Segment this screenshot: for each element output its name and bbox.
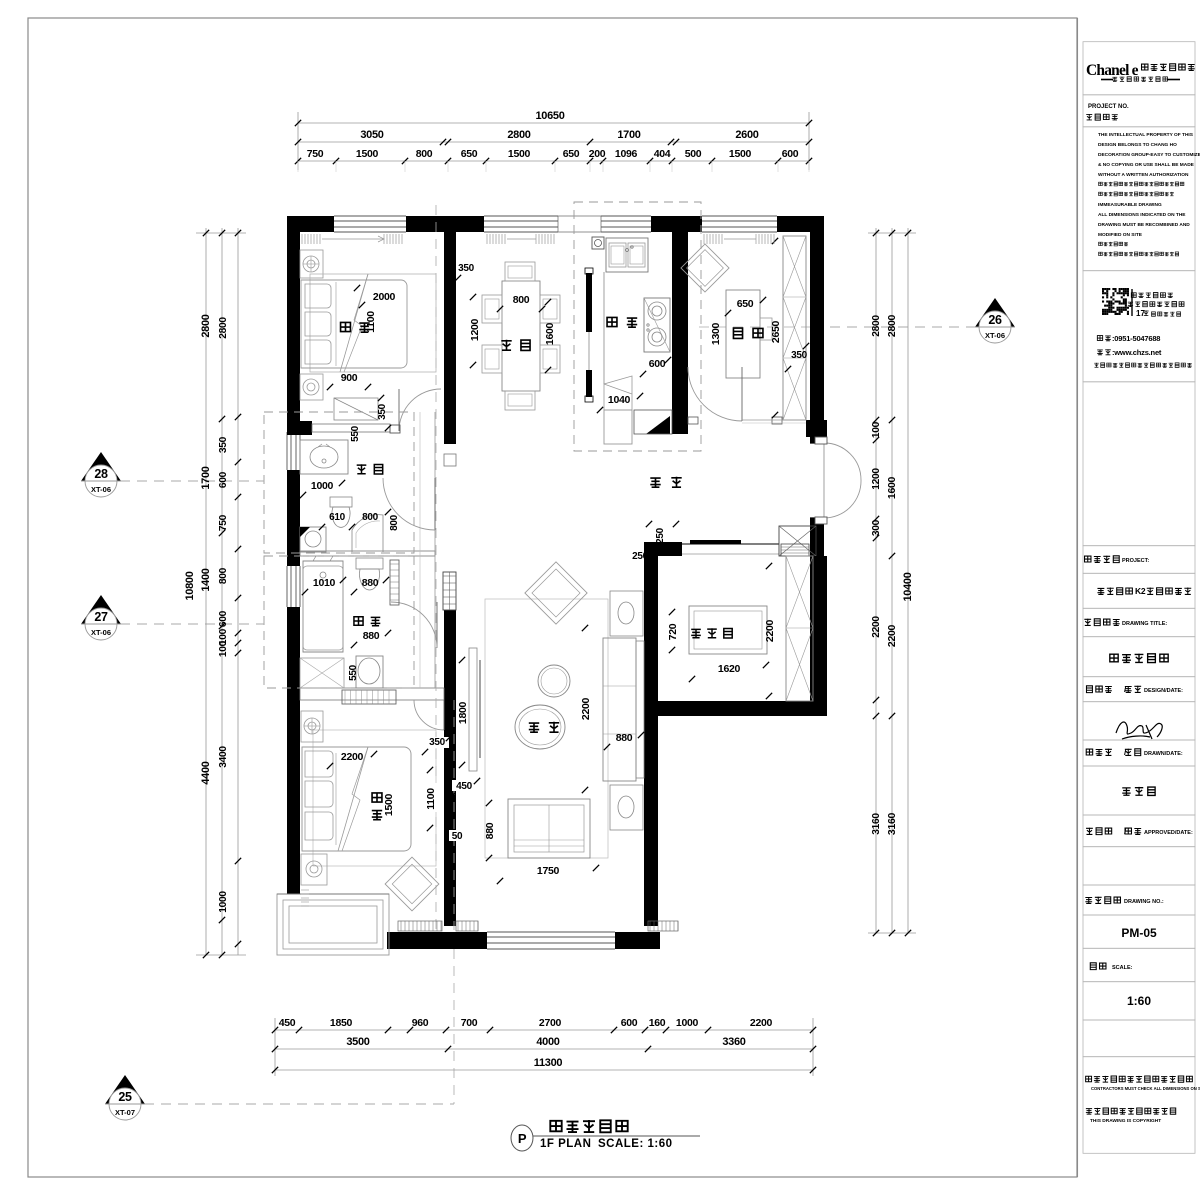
svg-text:800: 800 <box>416 148 433 160</box>
svg-text:900: 900 <box>341 372 358 384</box>
svg-text:404: 404 <box>654 148 671 160</box>
svg-text:550: 550 <box>350 425 361 442</box>
svg-text:1010: 1010 <box>313 577 336 589</box>
svg-text:1100: 1100 <box>365 311 377 333</box>
svg-text:25: 25 <box>118 1090 132 1104</box>
svg-text:2800: 2800 <box>200 314 212 337</box>
svg-text:2800: 2800 <box>507 129 530 141</box>
svg-text:1:60: 1:60 <box>1127 994 1151 1008</box>
svg-text:PM-05: PM-05 <box>1121 926 1157 940</box>
svg-text:2200: 2200 <box>580 697 592 720</box>
svg-text:1500: 1500 <box>356 148 379 160</box>
svg-text:1096: 1096 <box>615 148 638 160</box>
svg-text:600: 600 <box>649 358 666 370</box>
svg-text:1100: 1100 <box>425 788 437 810</box>
svg-text:2200: 2200 <box>764 619 776 642</box>
svg-text:1000: 1000 <box>311 480 334 492</box>
svg-text:17: 17 <box>1136 309 1145 318</box>
svg-text:2800: 2800 <box>218 317 229 339</box>
svg-text:3050: 3050 <box>360 129 383 141</box>
svg-text:350: 350 <box>429 737 446 748</box>
svg-text:720: 720 <box>667 623 679 640</box>
svg-text:2200: 2200 <box>871 616 882 638</box>
svg-text:300: 300 <box>871 519 882 536</box>
svg-text::www.chzs.net: :www.chzs.net <box>1112 348 1162 357</box>
svg-text:450: 450 <box>279 1017 296 1029</box>
svg-text:800: 800 <box>362 512 379 523</box>
svg-text:250: 250 <box>632 551 649 562</box>
svg-text:MODIFIED ON SITE: MODIFIED ON SITE <box>1098 232 1143 238</box>
svg-text:3500: 3500 <box>346 1036 369 1048</box>
svg-text:DECORATION GROUP-EASY TO CUSTO: DECORATION GROUP-EASY TO CUSTOMIZE <box>1098 152 1200 158</box>
svg-text:880: 880 <box>362 577 379 589</box>
svg-text:350: 350 <box>377 403 388 420</box>
svg-text:THIS DRAWING IS COPYRIGHT: THIS DRAWING IS COPYRIGHT <box>1090 1118 1161 1124</box>
svg-text:1850: 1850 <box>330 1017 353 1029</box>
svg-text:DRAWING NO.:: DRAWING NO.: <box>1124 899 1164 905</box>
svg-text:250: 250 <box>655 527 666 544</box>
svg-text:3400: 3400 <box>218 746 229 768</box>
svg-text:DESIGN BELONGS TO CHANG HO: DESIGN BELONGS TO CHANG HO <box>1098 142 1177 148</box>
svg-text:PROJECT:: PROJECT: <box>1122 558 1149 564</box>
svg-text:1600: 1600 <box>886 476 898 499</box>
svg-text:2800: 2800 <box>886 314 898 337</box>
svg-text:1500: 1500 <box>383 793 395 816</box>
svg-text:750: 750 <box>307 148 324 160</box>
svg-text:4400: 4400 <box>200 761 212 784</box>
svg-text:SCALE: 1:60: SCALE: 1:60 <box>598 1138 673 1150</box>
svg-text:3160: 3160 <box>871 813 882 835</box>
svg-text:650: 650 <box>563 148 580 160</box>
svg-text:P: P <box>518 1131 527 1146</box>
svg-text:600: 600 <box>218 610 229 627</box>
svg-text:750: 750 <box>218 514 229 531</box>
svg-text:1200: 1200 <box>469 318 481 341</box>
svg-text:ALL DIMENSIONS INDICATED ON TH: ALL DIMENSIONS INDICATED ON THE <box>1098 212 1186 218</box>
svg-text:1750: 1750 <box>537 865 560 877</box>
svg-text::0951-5047688: :0951-5047688 <box>1112 334 1160 343</box>
svg-text:& NO COPYING OR USE SHALL BE M: & NO COPYING OR USE SHALL BE MADE <box>1098 162 1195 168</box>
svg-text:1000: 1000 <box>218 891 229 913</box>
svg-text:800: 800 <box>218 567 229 584</box>
svg-text:3160: 3160 <box>886 812 898 835</box>
svg-text:XT-07: XT-07 <box>115 1108 135 1117</box>
svg-text:THE INTELLECTUAL PROPERTY OF T: THE INTELLECTUAL PROPERTY OF THIS <box>1098 132 1194 138</box>
svg-text:1600: 1600 <box>544 322 556 345</box>
svg-text:350: 350 <box>791 350 808 361</box>
svg-text:1F PLAN: 1F PLAN <box>540 1138 591 1150</box>
svg-text:3360: 3360 <box>722 1036 745 1048</box>
svg-text:1200: 1200 <box>871 468 882 490</box>
svg-text:28: 28 <box>94 467 108 481</box>
svg-text:11300: 11300 <box>534 1057 563 1069</box>
svg-text:10800: 10800 <box>184 571 196 600</box>
svg-text:2200: 2200 <box>750 1017 773 1029</box>
svg-text:200: 200 <box>589 148 606 160</box>
svg-text:2800: 2800 <box>871 315 882 337</box>
svg-text:800: 800 <box>513 294 530 306</box>
svg-text:WITHOUT A WRITTEN AUTHORIZATIO: WITHOUT A WRITTEN AUTHORIZATION <box>1098 172 1189 178</box>
svg-text:1800: 1800 <box>457 701 469 724</box>
svg-text:XT-06: XT-06 <box>985 331 1005 340</box>
svg-text:1620: 1620 <box>718 663 741 675</box>
svg-text:610: 610 <box>329 512 346 523</box>
svg-text:880: 880 <box>363 630 380 642</box>
svg-text:1000: 1000 <box>676 1017 699 1029</box>
svg-text:26: 26 <box>988 313 1002 327</box>
svg-text:PROJECT NO.: PROJECT NO. <box>1088 104 1129 110</box>
svg-text:DRAWN/DATE:: DRAWN/DATE: <box>1144 751 1183 757</box>
svg-text:1700: 1700 <box>617 129 640 141</box>
svg-text:1040: 1040 <box>608 394 631 406</box>
svg-text:SCALE:: SCALE: <box>1112 965 1133 971</box>
svg-text:960: 960 <box>412 1017 429 1029</box>
svg-text:K2: K2 <box>1135 586 1146 596</box>
svg-text:50: 50 <box>452 831 463 842</box>
svg-text:350: 350 <box>458 263 475 274</box>
svg-text:2000: 2000 <box>373 291 396 303</box>
svg-text:IMMEASURABLE DRAWING: IMMEASURABLE DRAWING <box>1098 202 1162 208</box>
svg-text:450: 450 <box>456 781 473 792</box>
svg-text:350: 350 <box>218 436 229 453</box>
svg-text:DRAWING TITLE:: DRAWING TITLE: <box>1122 621 1167 627</box>
svg-text:700: 700 <box>461 1017 478 1029</box>
svg-text:880: 880 <box>616 732 633 744</box>
svg-text:10650: 10650 <box>535 110 564 122</box>
svg-text:10400: 10400 <box>902 572 914 601</box>
svg-text:650: 650 <box>737 298 754 310</box>
svg-text:2700: 2700 <box>539 1017 562 1029</box>
svg-text:1300: 1300 <box>710 322 722 345</box>
svg-text:2650: 2650 <box>770 320 782 343</box>
svg-text:APPROVED/DATE:: APPROVED/DATE: <box>1144 830 1193 836</box>
svg-text:880: 880 <box>484 822 496 839</box>
svg-text:1500: 1500 <box>508 148 531 160</box>
svg-text:27: 27 <box>94 610 108 624</box>
svg-text:100: 100 <box>871 421 882 438</box>
svg-text:600: 600 <box>218 471 229 488</box>
svg-text:CONTRACTORS MUST CHECK ALL DIM: CONTRACTORS MUST CHECK ALL DIMENSIONS ON… <box>1091 1086 1200 1091</box>
svg-text:550: 550 <box>348 664 359 681</box>
svg-text:4000: 4000 <box>536 1036 559 1048</box>
svg-text:1700: 1700 <box>200 466 212 489</box>
svg-text:DESIGN/DATE:: DESIGN/DATE: <box>1144 688 1183 694</box>
svg-text:500: 500 <box>685 148 702 160</box>
svg-text:XT-06: XT-06 <box>91 485 111 494</box>
svg-text:2200: 2200 <box>341 751 364 763</box>
svg-text:2600: 2600 <box>735 129 758 141</box>
svg-text:600: 600 <box>782 148 799 160</box>
svg-text:1500: 1500 <box>729 148 752 160</box>
svg-text:600: 600 <box>621 1017 638 1029</box>
svg-text:XT-06: XT-06 <box>91 628 111 637</box>
svg-text:650: 650 <box>461 148 478 160</box>
svg-text:1400: 1400 <box>200 568 212 591</box>
svg-text:2200: 2200 <box>886 624 898 647</box>
svg-text:100: 100 <box>218 640 229 657</box>
svg-text:DRAWING MUST BE RECOMBINED AND: DRAWING MUST BE RECOMBINED AND <box>1098 222 1190 228</box>
svg-text:800: 800 <box>389 514 400 531</box>
svg-text:160: 160 <box>649 1017 666 1029</box>
